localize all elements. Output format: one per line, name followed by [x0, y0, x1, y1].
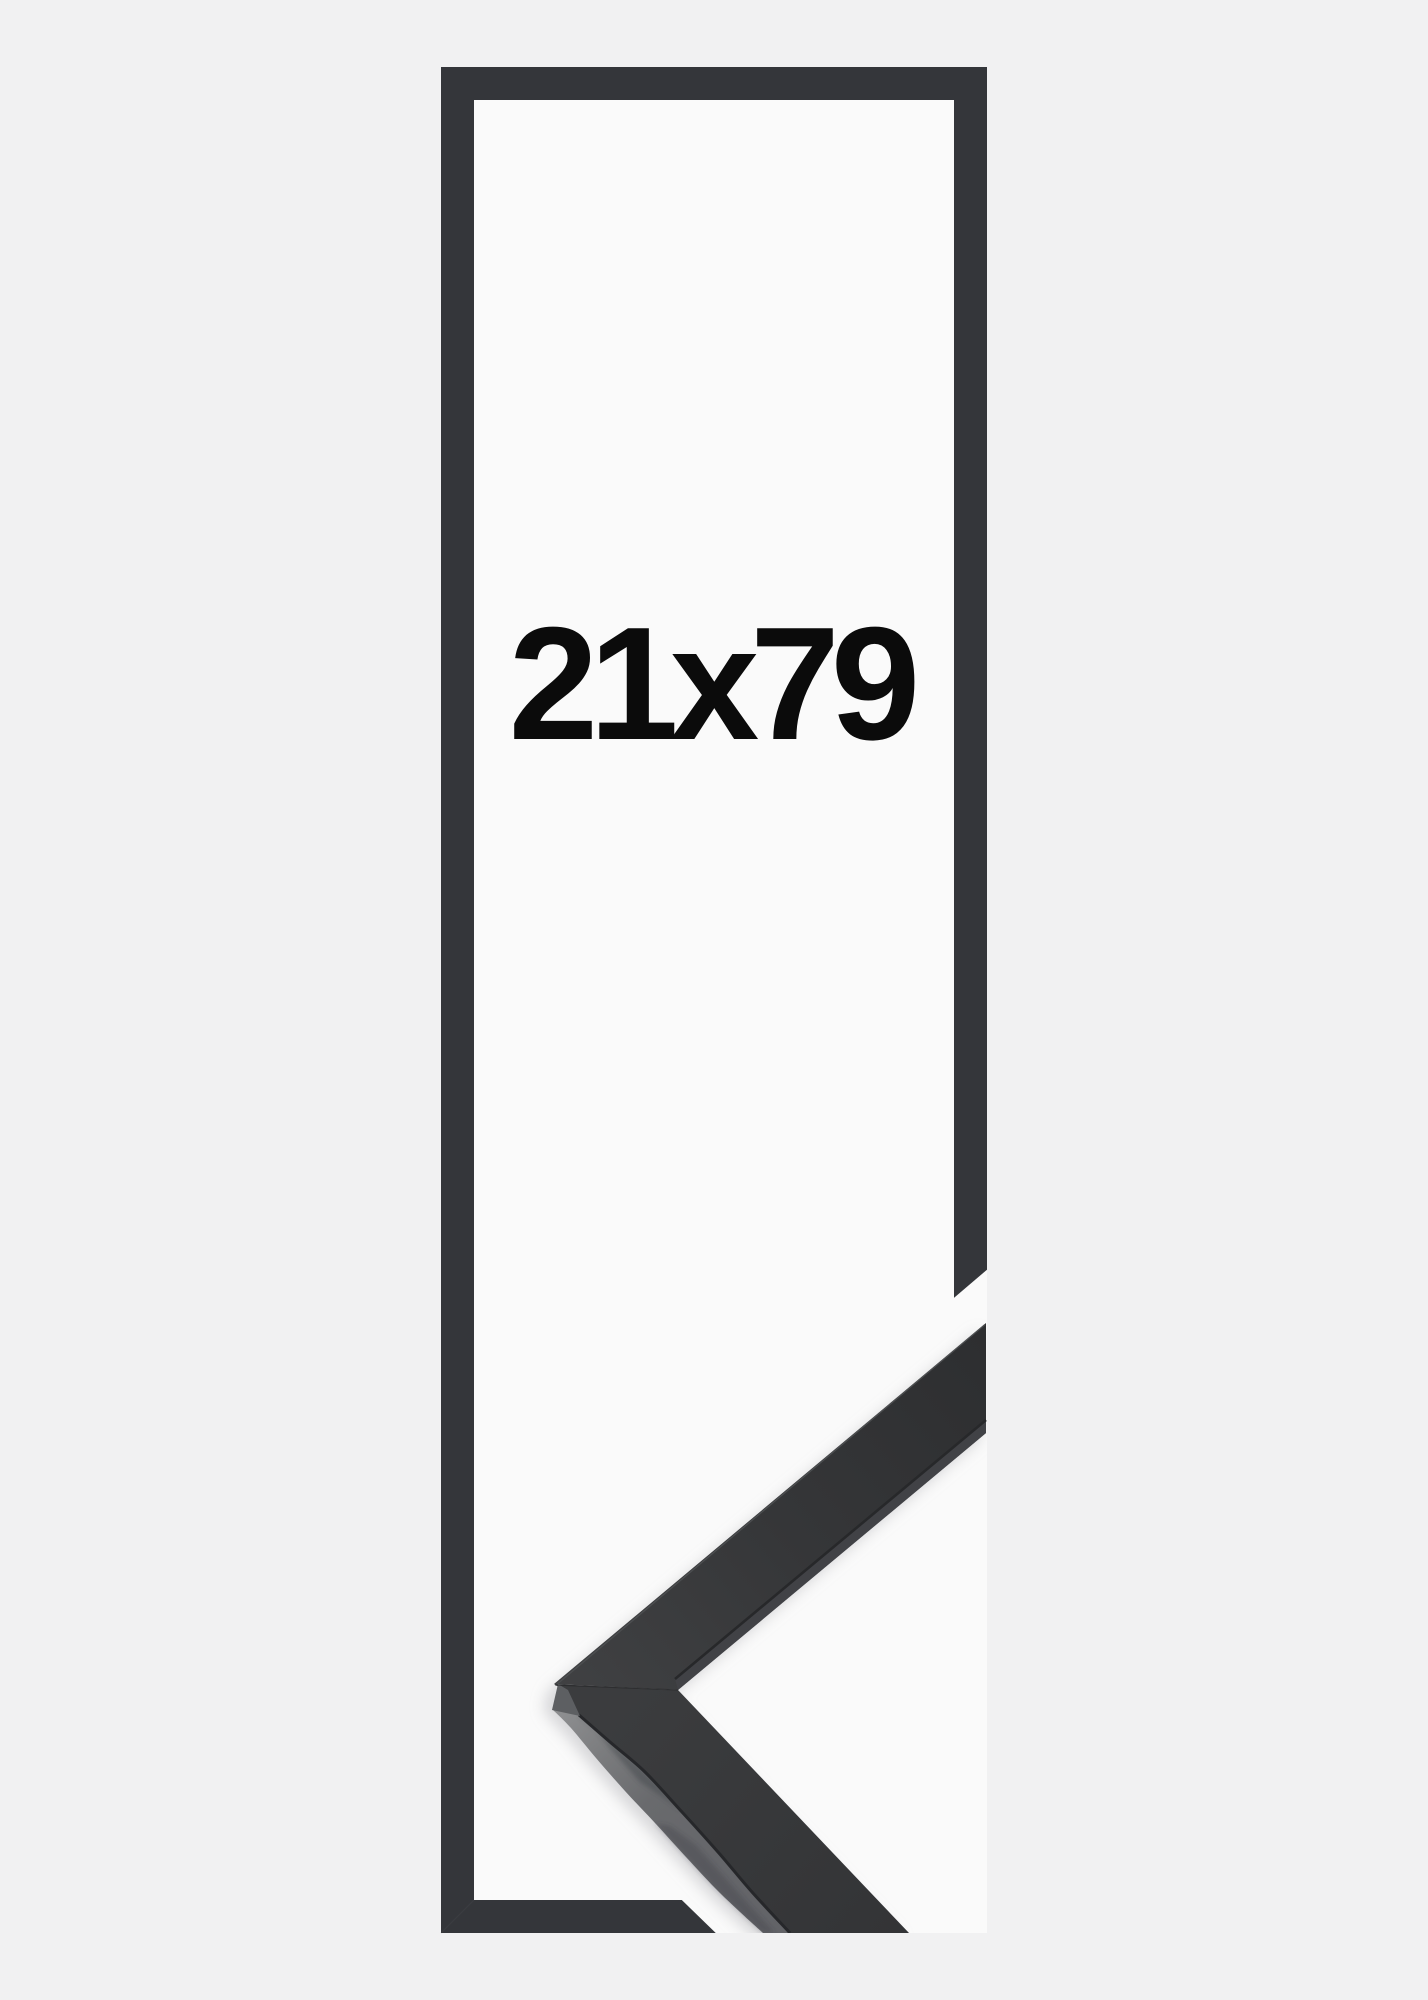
svg-text:21x79: 21x79: [509, 594, 915, 774]
